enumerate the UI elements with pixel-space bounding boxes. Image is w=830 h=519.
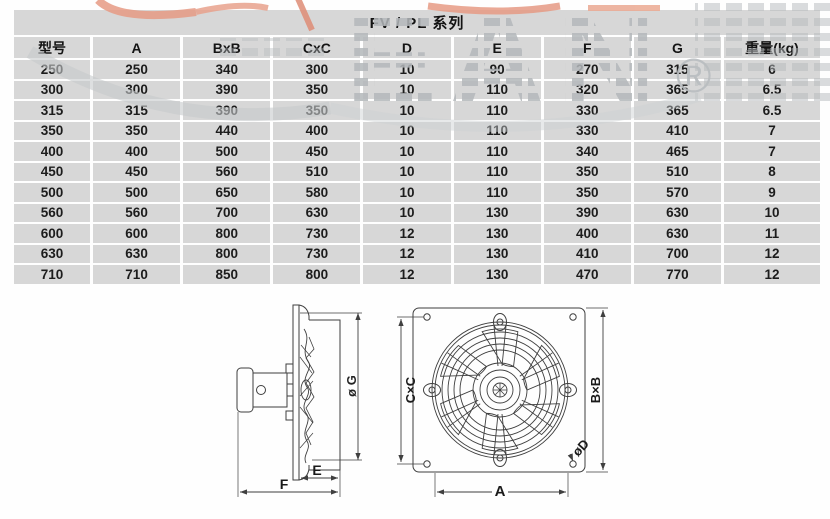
bell-panel — [309, 320, 340, 470]
table-cell: 130 — [454, 265, 541, 284]
table-cell: 510 — [634, 163, 721, 182]
table-cell: 11 — [724, 224, 820, 243]
dimension-e: E — [301, 462, 340, 483]
table-cell: 800 — [183, 245, 270, 264]
guard-rings — [432, 322, 568, 458]
table-cell: 90 — [454, 60, 541, 79]
header-cxc: CxC — [273, 37, 360, 58]
table-cell: 570 — [634, 183, 721, 202]
table-cell: 300 — [14, 81, 90, 100]
label-a: A — [495, 483, 506, 500]
label-g: ø G — [344, 375, 359, 397]
table-cell: 390 — [183, 101, 270, 120]
table-cell: 10 — [724, 204, 820, 223]
header-f: F — [544, 37, 631, 58]
dimension-cxc: C×C — [397, 317, 424, 464]
table-cell: 130 — [454, 224, 541, 243]
motor — [237, 364, 293, 420]
table-cell: 130 — [454, 204, 541, 223]
table-cell: 110 — [454, 163, 541, 182]
table-cell: 560 — [183, 163, 270, 182]
table-cell: 10 — [363, 81, 450, 100]
table-cell: 12 — [363, 265, 450, 284]
dimension-f: F — [238, 412, 340, 497]
table-cell: 710 — [14, 265, 90, 284]
table-cell: 580 — [273, 183, 360, 202]
table-title: FV / PL 系列 — [14, 10, 820, 35]
table-cell: 630 — [634, 224, 721, 243]
table-cell: 6.5 — [724, 81, 820, 100]
spec-table: FV / PL 系列 型号 A BxB CxC D E F G 重量(kg) 2… — [14, 10, 820, 284]
table-cell: 500 — [183, 142, 270, 161]
table-cell: 630 — [634, 204, 721, 223]
table-cell: 6.5 — [724, 101, 820, 120]
table-cell: 6 — [724, 60, 820, 79]
dimension-a: A — [435, 473, 568, 500]
table-cell: 7 — [724, 142, 820, 161]
table-cell: 10 — [363, 204, 450, 223]
table-cell: 470 — [544, 265, 631, 284]
table-cell: 12 — [363, 224, 450, 243]
table-cell: 300 — [273, 60, 360, 79]
table-cell: 400 — [14, 142, 90, 161]
table-cell: 410 — [544, 245, 631, 264]
table-cell: 770 — [634, 265, 721, 284]
table-cell: 12 — [724, 265, 820, 284]
impeller-edge — [300, 329, 314, 463]
header-d: D — [363, 37, 450, 58]
table-cell: 465 — [634, 142, 721, 161]
table-cell: 10 — [363, 183, 450, 202]
front-view: C×C B×B A øD — [397, 308, 608, 500]
table-cell: 350 — [14, 122, 90, 141]
table-cell: 110 — [454, 122, 541, 141]
table-cell: 365 — [634, 81, 721, 100]
header-g: G — [634, 37, 721, 58]
side-view: ø G E F — [237, 305, 362, 497]
table-cell: 510 — [273, 163, 360, 182]
table-cell: 130 — [454, 245, 541, 264]
table-cell: 450 — [273, 142, 360, 161]
header-weight: 重量(kg) — [724, 37, 820, 58]
table-cell: 400 — [273, 122, 360, 141]
header-bxb: BxB — [183, 37, 270, 58]
label-bxb: B×B — [588, 377, 603, 403]
table-cell: 800 — [183, 224, 270, 243]
table-cell: 450 — [14, 163, 90, 182]
table-cell: 700 — [183, 204, 270, 223]
table-cell: 10 — [363, 142, 450, 161]
table-cell: 365 — [634, 101, 721, 120]
table-cell: 390 — [183, 81, 270, 100]
table-cell: 10 — [363, 163, 450, 182]
table-cell: 630 — [273, 204, 360, 223]
table-cell: 350 — [273, 101, 360, 120]
table-cell: 650 — [183, 183, 270, 202]
table-cell: 330 — [544, 101, 631, 120]
dimension-d: øD — [569, 436, 592, 461]
table-cell: 410 — [634, 122, 721, 141]
table-cell: 600 — [14, 224, 90, 243]
label-d: øD — [569, 436, 592, 459]
table-cell: 710 — [93, 265, 180, 284]
table-cell: 390 — [544, 204, 631, 223]
table-cell: 250 — [14, 60, 90, 79]
table-cell: 270 — [544, 60, 631, 79]
table-cell: 600 — [93, 224, 180, 243]
table-cell: 110 — [454, 81, 541, 100]
table-cell: 330 — [544, 122, 631, 141]
table-cell: 7 — [724, 122, 820, 141]
table-cell: 10 — [363, 122, 450, 141]
table-cell: 9 — [724, 183, 820, 202]
table-cell: 340 — [544, 142, 631, 161]
table-cell: 12 — [363, 245, 450, 264]
table-cell: 800 — [273, 265, 360, 284]
table-cell: 315 — [93, 101, 180, 120]
table-cell: 440 — [183, 122, 270, 141]
label-e: E — [312, 462, 321, 478]
table-cell: 350 — [544, 163, 631, 182]
table-cell: 10 — [363, 60, 450, 79]
fan-technical-drawing: ø G E F — [0, 285, 830, 519]
table-cell: 500 — [93, 183, 180, 202]
table-cell: 560 — [93, 204, 180, 223]
table-cell: 8 — [724, 163, 820, 182]
table-cell: 700 — [634, 245, 721, 264]
table-cell: 320 — [544, 81, 631, 100]
table-cell: 560 — [14, 204, 90, 223]
table-cell: 350 — [273, 81, 360, 100]
table-cell: 350 — [93, 122, 180, 141]
table-cell: 400 — [93, 142, 180, 161]
header-model: 型号 — [14, 37, 90, 58]
table-cell: 500 — [14, 183, 90, 202]
table-cell: 10 — [363, 101, 450, 120]
table-cell: 315 — [14, 101, 90, 120]
table-cell: 340 — [183, 60, 270, 79]
table-cell: 400 — [544, 224, 631, 243]
table-cell: 730 — [273, 224, 360, 243]
table-cell: 110 — [454, 142, 541, 161]
table-cell: 110 — [454, 101, 541, 120]
table-cell: 250 — [93, 60, 180, 79]
table-cell: 12 — [724, 245, 820, 264]
table-cell: 450 — [93, 163, 180, 182]
label-cxc: C×C — [403, 376, 418, 403]
table-cell: 730 — [273, 245, 360, 264]
label-f: F — [280, 476, 289, 492]
table-cell: 300 — [93, 81, 180, 100]
table-cell: 110 — [454, 183, 541, 202]
table-cell: 630 — [14, 245, 90, 264]
table-cell: 350 — [544, 183, 631, 202]
header-e: E — [454, 37, 541, 58]
header-a: A — [93, 37, 180, 58]
table-cell: 630 — [93, 245, 180, 264]
dimension-g: ø G — [300, 313, 362, 460]
table-cell: 315 — [634, 60, 721, 79]
table-cell: 850 — [183, 265, 270, 284]
